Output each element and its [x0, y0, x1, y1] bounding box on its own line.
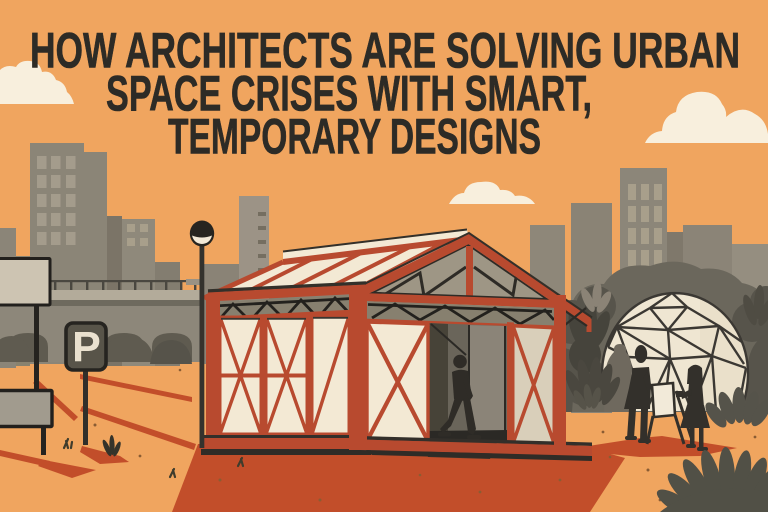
svg-text:TEMPORARY DESIGNS: TEMPORARY DESIGNS [168, 109, 541, 165]
svg-text:P: P [72, 324, 101, 372]
